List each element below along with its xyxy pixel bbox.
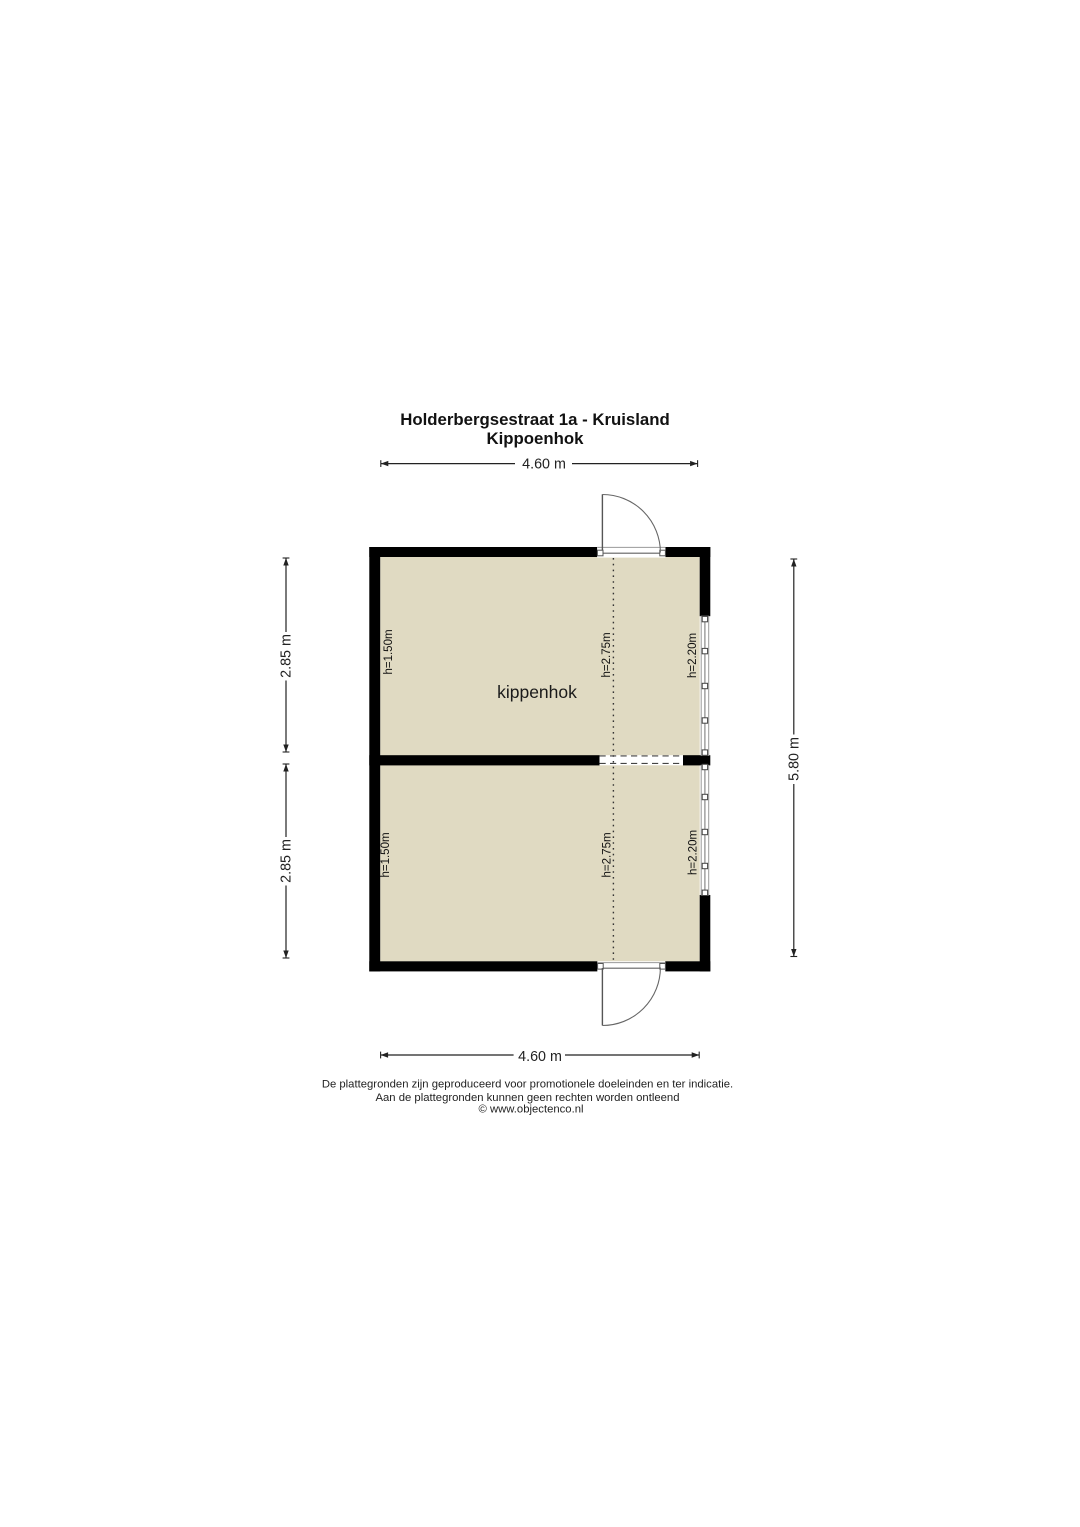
svg-text:h=2.75m: h=2.75m bbox=[602, 832, 614, 877]
svg-text:h=2.75m: h=2.75m bbox=[601, 632, 613, 677]
svg-text:h=2.20m: h=2.20m bbox=[687, 830, 699, 875]
svg-text:h=2.20m: h=2.20m bbox=[687, 633, 699, 678]
svg-text:2.85 m: 2.85 m bbox=[279, 634, 295, 678]
svg-text:Kippoenhok: Kippoenhok bbox=[487, 429, 585, 448]
svg-text:2.85 m: 2.85 m bbox=[279, 839, 295, 883]
svg-text:kippenhok: kippenhok bbox=[497, 682, 577, 702]
svg-text:h=1.50m: h=1.50m bbox=[383, 629, 395, 674]
svg-text:© www.objectenco.nl: © www.objectenco.nl bbox=[478, 1104, 583, 1116]
svg-text:Holderbergsestraat 1a - Kruisl: Holderbergsestraat 1a - Kruisland bbox=[400, 410, 670, 429]
svg-text:5.80 m: 5.80 m bbox=[786, 737, 802, 781]
svg-text:4.60 m: 4.60 m bbox=[518, 1049, 562, 1065]
svg-text:4.60 m: 4.60 m bbox=[522, 457, 566, 473]
svg-text:Aan de plattegronden kunnen ge: Aan de plattegronden kunnen geen rechten… bbox=[375, 1092, 679, 1104]
svg-text:De plattegronden zijn geproduc: De plattegronden zijn geproduceerd voor … bbox=[322, 1079, 733, 1091]
svg-text:h=1.50m: h=1.50m bbox=[380, 832, 392, 877]
